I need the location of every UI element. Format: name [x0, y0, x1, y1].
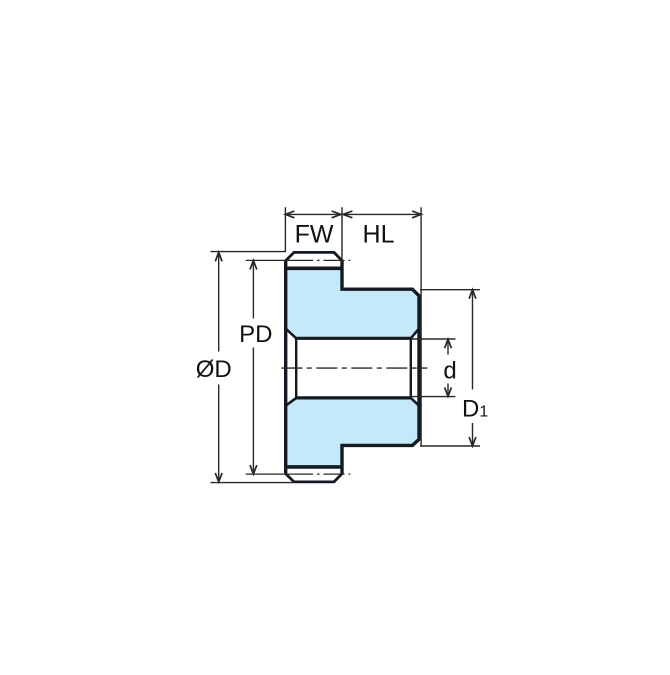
svg-text:ØD: ØD — [196, 356, 232, 383]
svg-text:d: d — [443, 357, 456, 384]
svg-text:FW: FW — [295, 221, 334, 249]
svg-text:HL: HL — [363, 221, 395, 249]
svg-text:PD: PD — [239, 321, 272, 348]
